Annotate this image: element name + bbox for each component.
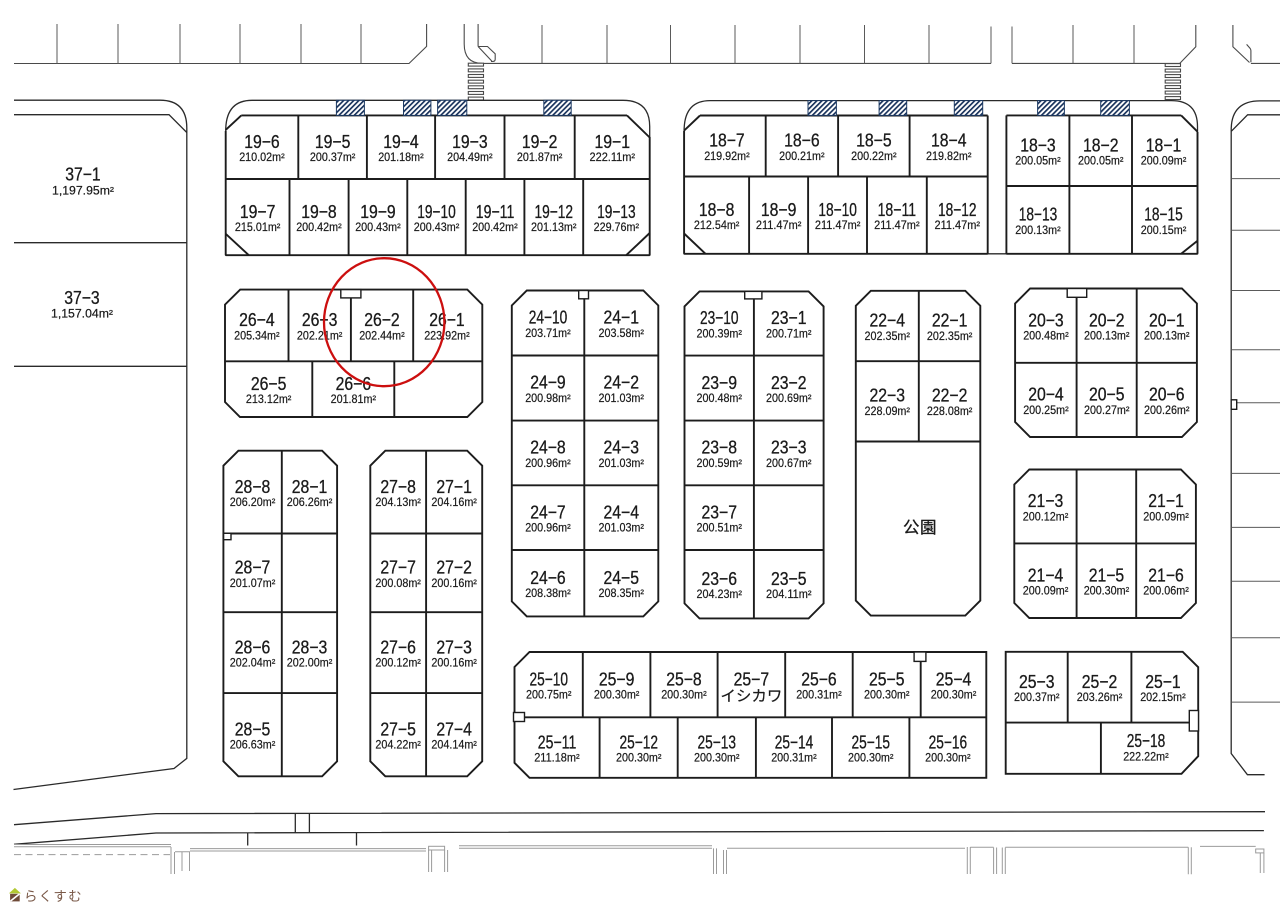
svg-text:27−3: 27−3 (436, 636, 472, 657)
svg-text:204.23m²: 204.23m² (697, 589, 743, 601)
svg-text:205.34m²: 205.34m² (234, 330, 280, 342)
svg-text:204.13m²: 204.13m² (375, 497, 421, 509)
svg-text:201.18m²: 201.18m² (378, 152, 424, 164)
svg-text:202.00m²: 202.00m² (287, 658, 333, 670)
svg-text:26−5: 26−5 (251, 373, 287, 394)
svg-text:20−1: 20−1 (1149, 309, 1185, 330)
svg-text:27−5: 27−5 (380, 718, 416, 739)
svg-text:200.12m²: 200.12m² (1023, 511, 1069, 523)
svg-text:200.30m²: 200.30m² (925, 753, 971, 765)
svg-text:24−5: 24−5 (604, 567, 640, 588)
svg-text:18−11: 18−11 (878, 199, 917, 220)
svg-text:202.35m²: 202.35m² (865, 331, 911, 343)
svg-text:200.15m²: 200.15m² (1141, 225, 1187, 237)
svg-text:22−2: 22−2 (932, 385, 968, 406)
svg-text:28−8: 28−8 (235, 476, 270, 497)
svg-text:200.51m²: 200.51m² (697, 523, 743, 535)
svg-text:200.42m²: 200.42m² (296, 222, 342, 234)
svg-text:212.54m²: 212.54m² (694, 220, 740, 232)
svg-text:211.47m²: 211.47m² (935, 220, 981, 232)
svg-text:25−9: 25−9 (599, 668, 635, 689)
svg-text:19−1: 19−1 (595, 131, 631, 152)
svg-text:18−13: 18−13 (1019, 204, 1057, 225)
svg-text:200.43m²: 200.43m² (414, 222, 460, 234)
svg-text:200.16m²: 200.16m² (431, 578, 477, 590)
svg-text:21−1: 21−1 (1148, 490, 1184, 511)
svg-text:28−7: 28−7 (235, 557, 270, 578)
svg-text:23−6: 23−6 (702, 568, 738, 589)
svg-text:らくすむ: らくすむ (24, 889, 83, 904)
svg-text:204.11m²: 204.11m² (766, 589, 812, 601)
svg-text:37−3: 37−3 (64, 287, 100, 308)
svg-text:24−6: 24−6 (530, 567, 566, 588)
svg-text:213.12m²: 213.12m² (246, 394, 292, 406)
svg-text:202.21m²: 202.21m² (297, 330, 343, 342)
svg-text:26−3: 26−3 (302, 309, 338, 330)
svg-text:18−7: 18−7 (709, 130, 745, 151)
svg-text:26−4: 26−4 (239, 309, 275, 330)
svg-text:24−2: 24−2 (604, 372, 640, 393)
svg-text:208.35m²: 208.35m² (599, 588, 645, 600)
svg-text:27−7: 27−7 (380, 557, 416, 578)
svg-text:25−18: 25−18 (1127, 730, 1166, 751)
svg-text:20−2: 20−2 (1089, 309, 1125, 330)
svg-text:25−1: 25−1 (1145, 671, 1181, 692)
svg-text:25−4: 25−4 (936, 668, 972, 689)
svg-text:200.98m²: 200.98m² (525, 393, 571, 405)
svg-text:25−11: 25−11 (538, 731, 577, 752)
svg-text:18−1: 18−1 (1146, 134, 1182, 155)
svg-text:200.37m²: 200.37m² (310, 152, 356, 164)
svg-text:23−10: 23−10 (700, 307, 739, 328)
svg-text:200.09m²: 200.09m² (1143, 511, 1189, 523)
svg-text:19−7: 19−7 (240, 201, 276, 222)
svg-text:18−15: 18−15 (1144, 204, 1183, 225)
svg-text:24−1: 24−1 (604, 307, 640, 328)
svg-text:25−15: 25−15 (852, 731, 891, 752)
svg-text:200.30m²: 200.30m² (848, 753, 894, 765)
svg-text:208.38m²: 208.38m² (525, 588, 571, 600)
svg-text:201.03m²: 201.03m² (599, 523, 645, 535)
svg-text:200.67m²: 200.67m² (766, 458, 812, 470)
svg-text:211.47m²: 211.47m² (874, 220, 920, 232)
svg-text:23−1: 23−1 (771, 307, 807, 328)
svg-text:200.31m²: 200.31m² (796, 690, 842, 702)
svg-text:28−6: 28−6 (235, 636, 270, 657)
svg-text:200.96m²: 200.96m² (525, 458, 571, 470)
svg-text:200.69m²: 200.69m² (766, 393, 812, 405)
svg-text:25−7: 25−7 (734, 668, 770, 689)
svg-text:25−8: 25−8 (666, 668, 702, 689)
svg-text:211.18m²: 211.18m² (534, 753, 580, 765)
svg-text:37−1: 37−1 (65, 164, 101, 185)
svg-text:200.09m²: 200.09m² (1141, 156, 1187, 168)
svg-text:200.08m²: 200.08m² (375, 578, 421, 590)
svg-text:203.26m²: 203.26m² (1077, 692, 1123, 704)
svg-text:200.13m²: 200.13m² (1015, 225, 1061, 237)
svg-text:200.05m²: 200.05m² (1015, 156, 1061, 168)
svg-text:200.09m²: 200.09m² (1023, 586, 1069, 598)
svg-text:24−7: 24−7 (530, 501, 566, 522)
svg-text:200.30m²: 200.30m² (1084, 586, 1130, 598)
svg-text:23−8: 23−8 (702, 437, 738, 458)
svg-text:19−13: 19−13 (597, 201, 636, 222)
svg-text:200.30m²: 200.30m² (694, 753, 740, 765)
svg-text:19−5: 19−5 (315, 131, 351, 152)
svg-text:19−2: 19−2 (522, 131, 558, 152)
svg-text:21−3: 21−3 (1028, 490, 1064, 511)
svg-text:200.30m²: 200.30m² (616, 753, 662, 765)
svg-text:19−9: 19−9 (360, 201, 396, 222)
svg-text:20−4: 20−4 (1028, 384, 1064, 405)
svg-text:200.30m²: 200.30m² (661, 690, 707, 702)
svg-text:203.58m²: 203.58m² (599, 328, 645, 340)
svg-text:27−6: 27−6 (380, 636, 416, 657)
svg-text:200.12m²: 200.12m² (375, 658, 421, 670)
svg-text:20−5: 20−5 (1089, 384, 1125, 405)
svg-text:202.44m²: 202.44m² (359, 330, 405, 342)
svg-text:18−10: 18−10 (818, 199, 857, 220)
svg-text:28−5: 28−5 (235, 718, 270, 739)
svg-text:18−4: 18−4 (931, 130, 967, 151)
svg-text:203.71m²: 203.71m² (525, 328, 571, 340)
svg-text:200.05m²: 200.05m² (1078, 156, 1124, 168)
svg-text:25−5: 25−5 (869, 668, 905, 689)
svg-text:23−3: 23−3 (771, 437, 807, 458)
svg-text:25−16: 25−16 (929, 731, 968, 752)
svg-text:200.26m²: 200.26m² (1144, 405, 1190, 417)
svg-text:204.16m²: 204.16m² (431, 497, 477, 509)
svg-text:20−3: 20−3 (1028, 309, 1064, 330)
svg-text:26−1: 26−1 (429, 309, 465, 330)
svg-text:200.96m²: 200.96m² (525, 523, 571, 535)
svg-text:18−12: 18−12 (938, 199, 977, 220)
svg-text:204.49m²: 204.49m² (447, 152, 493, 164)
svg-text:25−3: 25−3 (1019, 671, 1055, 692)
svg-text:23−9: 23−9 (702, 372, 738, 393)
svg-text:202.15m²: 202.15m² (1140, 692, 1186, 704)
svg-text:24−4: 24−4 (604, 501, 640, 522)
svg-text:201.03m²: 201.03m² (599, 458, 645, 470)
svg-text:19−8: 19−8 (301, 201, 337, 222)
svg-text:206.20m²: 206.20m² (230, 497, 276, 509)
svg-text:23−7: 23−7 (702, 501, 738, 522)
svg-text:202.35m²: 202.35m² (927, 331, 973, 343)
svg-text:202.04m²: 202.04m² (230, 658, 276, 670)
svg-text:27−8: 27−8 (380, 476, 416, 497)
svg-text:211.47m²: 211.47m² (815, 220, 861, 232)
svg-text:200.22m²: 200.22m² (851, 151, 897, 163)
svg-text:19−6: 19−6 (244, 131, 280, 152)
svg-text:21−6: 21−6 (1148, 564, 1184, 585)
svg-text:22−1: 22−1 (932, 310, 968, 331)
svg-text:24−8: 24−8 (530, 437, 566, 458)
svg-text:18−8: 18−8 (699, 199, 735, 220)
svg-text:206.26m²: 206.26m² (287, 497, 333, 509)
svg-text:27−1: 27−1 (436, 476, 472, 497)
svg-text:25−14: 25−14 (775, 731, 814, 752)
svg-text:26−2: 26−2 (364, 309, 400, 330)
svg-text:18−9: 18−9 (761, 199, 797, 220)
svg-text:200.71m²: 200.71m² (766, 328, 812, 340)
svg-text:200.27m²: 200.27m² (1084, 405, 1130, 417)
svg-text:206.63m²: 206.63m² (230, 740, 276, 752)
svg-text:公園: 公園 (903, 519, 937, 537)
svg-text:25−6: 25−6 (801, 668, 837, 689)
svg-text:イシカワ: イシカワ (720, 688, 782, 705)
svg-text:200.48m²: 200.48m² (1023, 331, 1069, 343)
svg-text:201.07m²: 201.07m² (230, 578, 276, 590)
svg-text:222.11m²: 222.11m² (590, 152, 636, 164)
svg-text:228.08m²: 228.08m² (927, 406, 973, 418)
svg-text:28−3: 28−3 (292, 636, 328, 657)
svg-text:200.43m²: 200.43m² (355, 222, 401, 234)
svg-text:200.39m²: 200.39m² (697, 328, 743, 340)
svg-text:25−2: 25−2 (1082, 671, 1118, 692)
svg-text:201.13m²: 201.13m² (531, 222, 577, 234)
svg-text:18−6: 18−6 (784, 130, 820, 151)
svg-text:229.76m²: 229.76m² (594, 222, 640, 234)
svg-text:28−1: 28−1 (292, 476, 328, 497)
svg-text:25−10: 25−10 (530, 668, 569, 689)
svg-text:200.30m²: 200.30m² (594, 690, 640, 702)
svg-text:21−4: 21−4 (1028, 564, 1064, 585)
svg-text:219.82m²: 219.82m² (926, 151, 972, 163)
svg-text:27−4: 27−4 (436, 718, 472, 739)
svg-text:210.02m²: 210.02m² (239, 152, 285, 164)
svg-text:27−2: 27−2 (436, 557, 472, 578)
svg-text:200.25m²: 200.25m² (1023, 405, 1069, 417)
svg-text:200.30m²: 200.30m² (864, 690, 910, 702)
svg-text:200.42m²: 200.42m² (472, 222, 518, 234)
svg-text:228.09m²: 228.09m² (865, 406, 911, 418)
svg-text:20−6: 20−6 (1149, 384, 1185, 405)
svg-text:19−4: 19−4 (383, 131, 419, 152)
svg-text:200.13m²: 200.13m² (1144, 331, 1190, 343)
svg-text:19−11: 19−11 (476, 201, 515, 222)
svg-text:201.87m²: 201.87m² (517, 152, 563, 164)
svg-text:200.16m²: 200.16m² (431, 658, 477, 670)
svg-text:204.22m²: 204.22m² (375, 740, 421, 752)
svg-text:200.37m²: 200.37m² (1014, 692, 1060, 704)
svg-text:19−3: 19−3 (452, 131, 488, 152)
svg-text:200.48m²: 200.48m² (697, 393, 743, 405)
svg-text:23−2: 23−2 (771, 372, 807, 393)
svg-text:222.22m²: 222.22m² (1123, 751, 1169, 763)
svg-text:23−5: 23−5 (771, 568, 807, 589)
svg-text:200.30m²: 200.30m² (931, 690, 977, 702)
svg-text:211.47m²: 211.47m² (756, 220, 802, 232)
svg-text:223.92m²: 223.92m² (424, 330, 470, 342)
svg-text:18−2: 18−2 (1083, 134, 1119, 155)
svg-text:200.59m²: 200.59m² (697, 458, 743, 470)
svg-text:1,157.04m²: 1,157.04m² (51, 309, 113, 321)
svg-text:18−5: 18−5 (856, 130, 892, 151)
svg-text:24−10: 24−10 (529, 307, 568, 328)
svg-text:219.92m²: 219.92m² (704, 151, 750, 163)
svg-text:22−3: 22−3 (870, 385, 906, 406)
svg-text:22−4: 22−4 (870, 310, 906, 331)
svg-text:24−3: 24−3 (604, 437, 640, 458)
svg-text:204.14m²: 204.14m² (431, 740, 477, 752)
svg-text:215.01m²: 215.01m² (235, 222, 281, 234)
svg-text:200.13m²: 200.13m² (1084, 331, 1130, 343)
svg-text:200.06m²: 200.06m² (1143, 586, 1189, 598)
svg-text:25−12: 25−12 (620, 731, 659, 752)
svg-text:200.31m²: 200.31m² (771, 753, 817, 765)
svg-text:21−5: 21−5 (1089, 564, 1125, 585)
svg-text:24−9: 24−9 (530, 372, 566, 393)
svg-text:19−12: 19−12 (535, 201, 574, 222)
svg-text:19−10: 19−10 (417, 201, 456, 222)
svg-text:18−3: 18−3 (1020, 134, 1055, 155)
svg-text:1,197.95m²: 1,197.95m² (52, 186, 114, 198)
svg-text:201.03m²: 201.03m² (599, 393, 645, 405)
svg-text:200.75m²: 200.75m² (526, 690, 572, 702)
svg-text:201.81m²: 201.81m² (331, 394, 377, 406)
svg-text:200.21m²: 200.21m² (779, 151, 825, 163)
svg-text:25−13: 25−13 (698, 731, 737, 752)
